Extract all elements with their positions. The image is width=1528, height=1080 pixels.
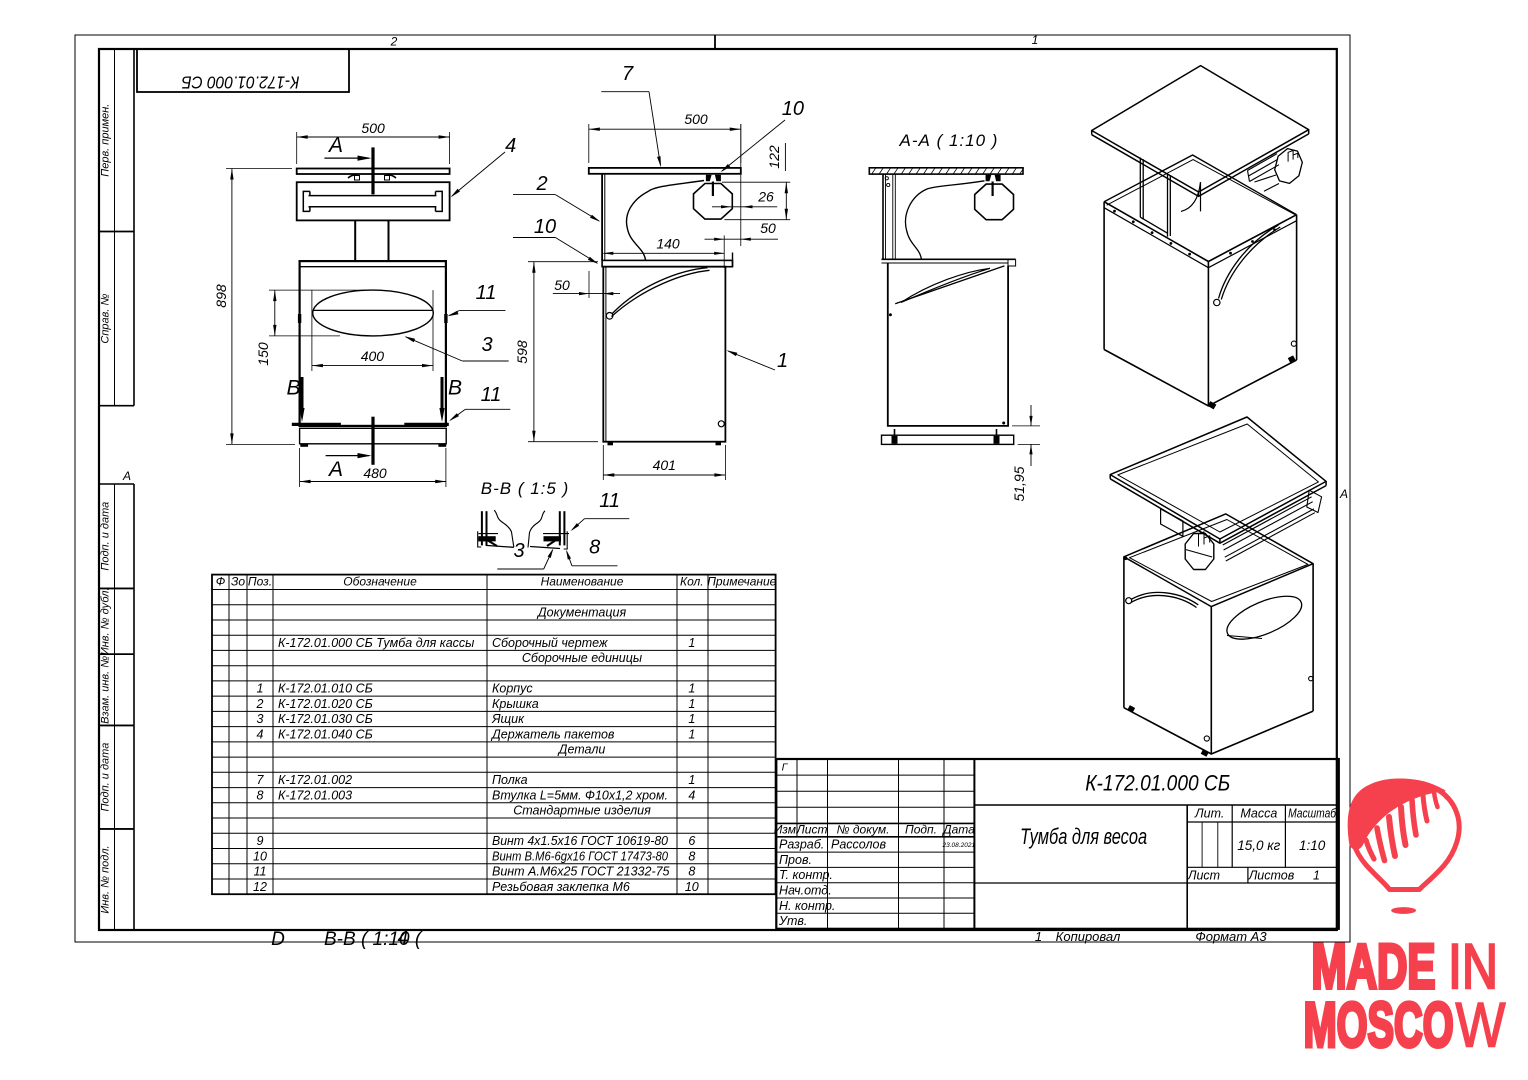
svg-text:Перв. примен.: Перв. примен. — [100, 104, 112, 177]
svg-text:4: 4 — [688, 788, 695, 802]
svg-text:Зо: Зо — [231, 575, 245, 589]
svg-text:B: B — [286, 377, 300, 400]
svg-text:3: 3 — [513, 540, 524, 562]
svg-text:Подп. и дата: Подп. и дата — [100, 743, 112, 812]
svg-text:Полка: Полка — [492, 773, 528, 787]
svg-text:W: W — [1456, 991, 1506, 1061]
svg-text:3: 3 — [257, 712, 264, 726]
svg-text:Ящик: Ящик — [491, 712, 525, 726]
svg-text:Ф: Ф — [216, 575, 226, 589]
svg-text:Нач.отд.: Нач.отд. — [779, 884, 832, 898]
svg-text:7: 7 — [622, 63, 634, 85]
svg-text:1: 1 — [688, 682, 695, 696]
svg-text:Справ. №: Справ. № — [100, 294, 112, 344]
svg-text:10: 10 — [253, 849, 267, 863]
svg-text:Втулка L=5мм. Ф10х1,2 хром.: Втулка L=5мм. Ф10х1,2 хром. — [492, 788, 668, 802]
svg-text:К-172.01.003: К-172.01.003 — [278, 788, 352, 802]
svg-text:Рассолов: Рассолов — [831, 838, 886, 852]
svg-text:Масштаб: Масштаб — [1288, 807, 1337, 821]
svg-text:1: 1 — [688, 697, 695, 711]
svg-text:B: B — [448, 377, 462, 400]
svg-text:Обозначение: Обозначение — [343, 575, 417, 589]
svg-text:1: 1 — [1313, 869, 1320, 883]
svg-text:1: 1 — [1035, 929, 1042, 944]
svg-text:1: 1 — [688, 727, 695, 741]
svg-text:К-172.01.002: К-172.01.002 — [278, 773, 352, 787]
svg-text:8: 8 — [688, 865, 695, 879]
svg-text:11: 11 — [599, 490, 620, 512]
svg-text:MOSCO: MOSCO — [1304, 991, 1454, 1061]
svg-text:Резьбовая заклепка М6: Резьбовая заклепка М6 — [492, 880, 630, 894]
svg-text:400: 400 — [361, 348, 385, 364]
svg-text:Документация: Документация — [536, 606, 627, 620]
svg-text:2: 2 — [390, 35, 398, 49]
svg-text:Кол.: Кол. — [680, 575, 704, 589]
svg-text:23.08.2021: 23.08.2021 — [942, 842, 976, 849]
svg-text:1: 1 — [777, 350, 788, 372]
svg-text:Инв. № подл.: Инв. № подл. — [100, 845, 112, 913]
svg-text:Корпус: Корпус — [492, 682, 533, 696]
svg-text:А-А ( 1:10 ): А-А ( 1:10 ) — [899, 131, 999, 150]
svg-text:К-172.01.030 СБ: К-172.01.030 СБ — [278, 712, 373, 726]
svg-text:Лист: Лист — [796, 823, 828, 837]
svg-text:Листов: Листов — [1248, 869, 1295, 883]
svg-text:Винт А.М6х25 ГОСТ 21332-75: Винт А.М6х25 ГОСТ 21332-75 — [492, 865, 670, 879]
svg-text:2: 2 — [256, 697, 264, 711]
svg-text:К-172.01.000 СБ: К-172.01.000 СБ — [1085, 771, 1230, 796]
svg-text:Утв.: Утв. — [778, 914, 807, 928]
svg-text:50: 50 — [554, 277, 570, 293]
svg-text:7: 7 — [257, 773, 265, 787]
svg-text:1: 1 — [1032, 33, 1039, 47]
svg-text:А: А — [327, 458, 343, 481]
svg-text:Винт В.М6-6gх16 ГОСТ 17473-80: Винт В.М6-6gх16 ГОСТ 17473-80 — [492, 849, 668, 863]
svg-text:Т. контр.: Т. контр. — [779, 868, 833, 882]
svg-text:9: 9 — [257, 834, 264, 848]
svg-text:401: 401 — [653, 457, 676, 473]
svg-text:А: А — [122, 469, 131, 483]
svg-text:Н. контр.: Н. контр. — [779, 899, 835, 913]
svg-text:500: 500 — [684, 111, 708, 127]
svg-text:11: 11 — [476, 282, 497, 304]
svg-text:Примечание: Примечание — [707, 575, 776, 589]
svg-text:Масса: Масса — [1240, 807, 1277, 821]
svg-text:51,95: 51,95 — [1011, 466, 1027, 501]
svg-text:8: 8 — [589, 537, 600, 559]
svg-text:1: 1 — [688, 773, 695, 787]
svg-text:15,0 кг: 15,0 кг — [1237, 838, 1280, 853]
svg-text:Формат А3: Формат А3 — [1195, 929, 1267, 944]
svg-text:8: 8 — [688, 849, 695, 863]
svg-text:Дата: Дата — [941, 823, 975, 837]
svg-text:Крышка: Крышка — [492, 697, 539, 711]
svg-text:Изм.: Изм. — [774, 823, 800, 837]
svg-text:2: 2 — [535, 173, 547, 195]
svg-text:Детали: Детали — [557, 743, 606, 757]
svg-text:Подп. и дата: Подп. и дата — [100, 502, 112, 571]
svg-text:10: 10 — [534, 216, 556, 238]
svg-text:К-172.01.020 СБ: К-172.01.020 СБ — [278, 697, 373, 711]
svg-text:Лит.: Лит. — [1194, 807, 1224, 821]
svg-text:Пров.: Пров. — [779, 853, 812, 867]
svg-text:К-172.01.000 СБ Тумба для касс: К-172.01.000 СБ Тумба для кассы — [278, 636, 474, 650]
svg-text:8: 8 — [257, 788, 264, 802]
svg-text:Взам. инв. №: Взам. инв. № — [100, 656, 112, 724]
svg-text:50: 50 — [760, 220, 776, 236]
svg-text:Стандартные изделия: Стандартные изделия — [513, 804, 651, 818]
svg-text:Копировал: Копировал — [1056, 929, 1121, 944]
svg-text:26: 26 — [757, 188, 774, 204]
svg-text:500: 500 — [361, 120, 385, 136]
svg-text:Разраб.: Разраб. — [779, 838, 824, 852]
svg-text:№ докум.: № докум. — [837, 823, 890, 837]
svg-text:150: 150 — [255, 342, 271, 366]
svg-text:Тумба для весоа: Тумба для весоа — [1020, 824, 1147, 849]
svg-text:B-B ( 1:5 ): B-B ( 1:5 ) — [481, 479, 569, 498]
svg-text:К-172.01.000 СБ: К-172.01.000 СБ — [182, 73, 300, 93]
svg-text:10: 10 — [685, 880, 699, 894]
svg-text:122: 122 — [766, 145, 782, 169]
svg-text:Сборочный чертеж: Сборочный чертеж — [492, 636, 609, 650]
svg-text:598: 598 — [514, 340, 530, 364]
svg-text:10: 10 — [782, 98, 804, 120]
svg-text:Сборочные единицы: Сборочные единицы — [522, 651, 642, 665]
svg-text:480: 480 — [363, 465, 387, 481]
svg-text:4: 4 — [257, 727, 264, 741]
svg-text:4: 4 — [505, 135, 516, 157]
svg-text:1: 1 — [688, 636, 695, 650]
svg-text:А: А — [1339, 487, 1348, 501]
svg-text:6: 6 — [688, 834, 695, 848]
svg-text:Лист: Лист — [1187, 869, 1220, 883]
svg-text:898: 898 — [213, 284, 229, 308]
svg-text:1: 1 — [257, 682, 264, 696]
svg-text:4: 4 — [398, 928, 409, 949]
svg-text:Наименование: Наименование — [541, 575, 624, 589]
svg-text:11: 11 — [254, 865, 267, 879]
svg-text:Винт 4х1.5х16 ГОСТ 10619-80: Винт 4х1.5х16 ГОСТ 10619-80 — [492, 834, 668, 848]
svg-text:1:10: 1:10 — [1299, 838, 1326, 853]
svg-text:D: D — [271, 929, 285, 950]
svg-text:1: 1 — [688, 712, 695, 726]
svg-text:Инв. № дубл.: Инв. № дубл. — [100, 587, 112, 655]
svg-text:К-172.01.040 СБ: К-172.01.040 СБ — [278, 727, 373, 741]
svg-text:11: 11 — [481, 384, 502, 406]
svg-text:140: 140 — [656, 236, 680, 252]
svg-text:К-172.01.010 СБ: К-172.01.010 СБ — [278, 682, 373, 696]
svg-text:Поз.: Поз. — [248, 575, 272, 589]
svg-text:Подп.: Подп. — [905, 823, 937, 837]
svg-text:3: 3 — [481, 334, 492, 356]
svg-text:12: 12 — [253, 880, 267, 894]
svg-text:А: А — [327, 134, 343, 157]
svg-text:Держатель пакетов: Держатель пакетов — [490, 727, 615, 741]
